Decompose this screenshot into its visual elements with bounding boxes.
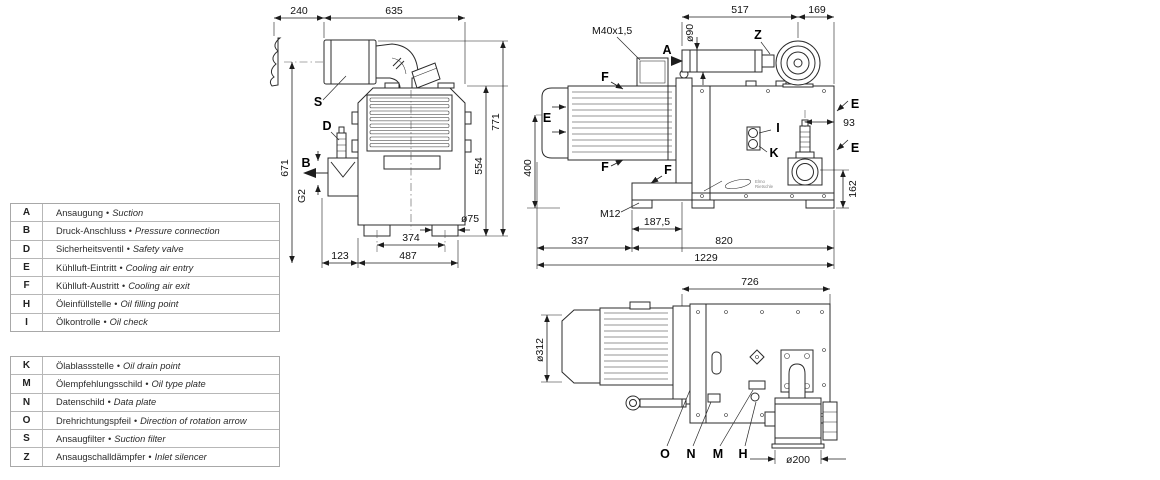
dim-820: 820 bbox=[715, 235, 733, 247]
discharge-flange-drawing bbox=[781, 350, 813, 398]
side-view: Elmo Rietschle 517 169 ø90 M40x1,5 A bbox=[522, 4, 859, 269]
dim-93: 93 bbox=[843, 117, 855, 129]
callout-E-left: E bbox=[543, 111, 551, 125]
callout-S: S bbox=[314, 95, 322, 109]
callout-I: I bbox=[776, 121, 779, 135]
pump-body-front bbox=[352, 83, 471, 236]
motor-drawing bbox=[542, 58, 676, 160]
dim-517: 517 bbox=[731, 4, 749, 16]
terminal-box bbox=[637, 58, 668, 86]
dim-771: 771 bbox=[490, 113, 502, 131]
dim-1229: 1229 bbox=[694, 252, 718, 264]
dim-M40x15: M40x1,5 bbox=[592, 25, 632, 37]
suction-filter-drawing bbox=[324, 40, 376, 84]
callout-K: K bbox=[769, 146, 778, 160]
callout-E-right-1: E bbox=[851, 97, 859, 111]
callout-D: D bbox=[322, 119, 331, 133]
oil-sight-glass-drawing bbox=[747, 127, 760, 150]
callout-Z: Z bbox=[754, 28, 762, 42]
dim-374: 374 bbox=[402, 232, 420, 244]
front-view: 240 635 671 554 771 ø75 bbox=[270, 5, 508, 268]
safety-valve-stem bbox=[337, 133, 346, 160]
callout-F-base: F bbox=[664, 163, 672, 177]
dim-162: 162 bbox=[847, 180, 859, 198]
dim-dia200: ø200 bbox=[786, 454, 810, 466]
inlet-elbow-drawing bbox=[376, 44, 440, 88]
dim-554: 554 bbox=[473, 157, 485, 175]
bottom-view: 726 ø312 O N M H ø200 bbox=[534, 276, 846, 466]
callout-O: O bbox=[660, 447, 670, 461]
callout-E-right-2: E bbox=[851, 141, 859, 155]
dim-337: 337 bbox=[571, 235, 589, 247]
dim-dia90: ø90 bbox=[684, 24, 696, 42]
callout-A: A bbox=[662, 43, 671, 57]
dim-240: 240 bbox=[290, 5, 308, 17]
dim-G2: G2 bbox=[296, 189, 308, 203]
dim-M12: M12 bbox=[600, 208, 621, 220]
callout-B: B bbox=[301, 156, 310, 170]
callout-F-bottom: F bbox=[601, 160, 609, 174]
dim-123: 123 bbox=[331, 250, 349, 262]
callout-F-top: F bbox=[601, 70, 609, 84]
callout-M: M bbox=[713, 447, 723, 461]
dim-169: 169 bbox=[808, 4, 826, 16]
pressure-connection-drawing bbox=[316, 127, 358, 196]
dim-635: 635 bbox=[385, 5, 403, 17]
technical-drawing-page: AAnsaugung•Suction BDruck-Anschluss•Pres… bbox=[0, 0, 1160, 480]
coupling-flange-bottom bbox=[673, 306, 690, 404]
callout-N: N bbox=[686, 447, 695, 461]
callout-H: H bbox=[738, 447, 747, 461]
dim-726: 726 bbox=[741, 276, 759, 288]
dim-dia312: ø312 bbox=[534, 338, 546, 362]
exhaust-box-drawing bbox=[632, 183, 692, 208]
dim-487: 487 bbox=[399, 250, 417, 262]
oil-filler-shape bbox=[751, 393, 759, 401]
dim-400: 400 bbox=[522, 159, 534, 177]
motor-drawing-bottom bbox=[562, 302, 673, 385]
fan-blade-shape bbox=[270, 38, 280, 86]
oil-separator-drawing bbox=[765, 398, 837, 448]
coupling-housing-drawing bbox=[676, 70, 692, 200]
dim-671: 671 bbox=[279, 159, 291, 177]
dim-187_5: 187,5 bbox=[644, 216, 670, 228]
brand-line2: Rietschle bbox=[755, 184, 774, 189]
dim-dia75: ø75 bbox=[461, 213, 479, 225]
suction-direction-arrow bbox=[671, 56, 683, 66]
pump-dimension-drawing: 240 635 671 554 771 ø75 bbox=[0, 0, 1160, 480]
